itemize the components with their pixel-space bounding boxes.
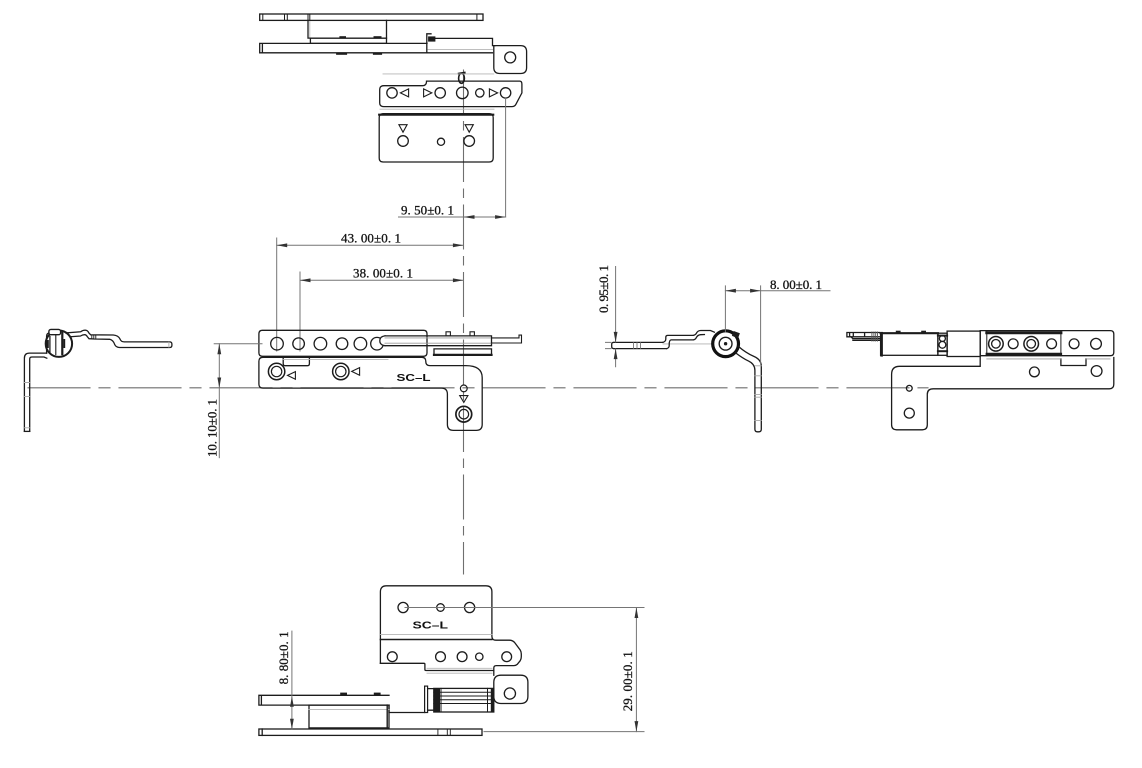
svg-text:8. 80±0. 1: 8. 80±0. 1 xyxy=(276,631,291,684)
svg-text:10. 10±0. 1: 10. 10±0. 1 xyxy=(205,399,220,457)
svg-text:9. 50±0. 1: 9. 50±0. 1 xyxy=(401,203,454,218)
svg-text:0. 95±0. 1: 0. 95±0. 1 xyxy=(596,265,611,313)
svg-text:SC–L: SC–L xyxy=(413,620,449,632)
svg-text:SC–L: SC–L xyxy=(397,372,432,384)
svg-text:29. 00±0. 1: 29. 00±0. 1 xyxy=(620,651,635,711)
svg-text:38. 00±0. 1: 38. 00±0. 1 xyxy=(353,266,413,281)
svg-text:43. 00±0. 1: 43. 00±0. 1 xyxy=(341,231,401,246)
svg-text:8. 00±0. 1: 8. 00±0. 1 xyxy=(770,277,822,292)
